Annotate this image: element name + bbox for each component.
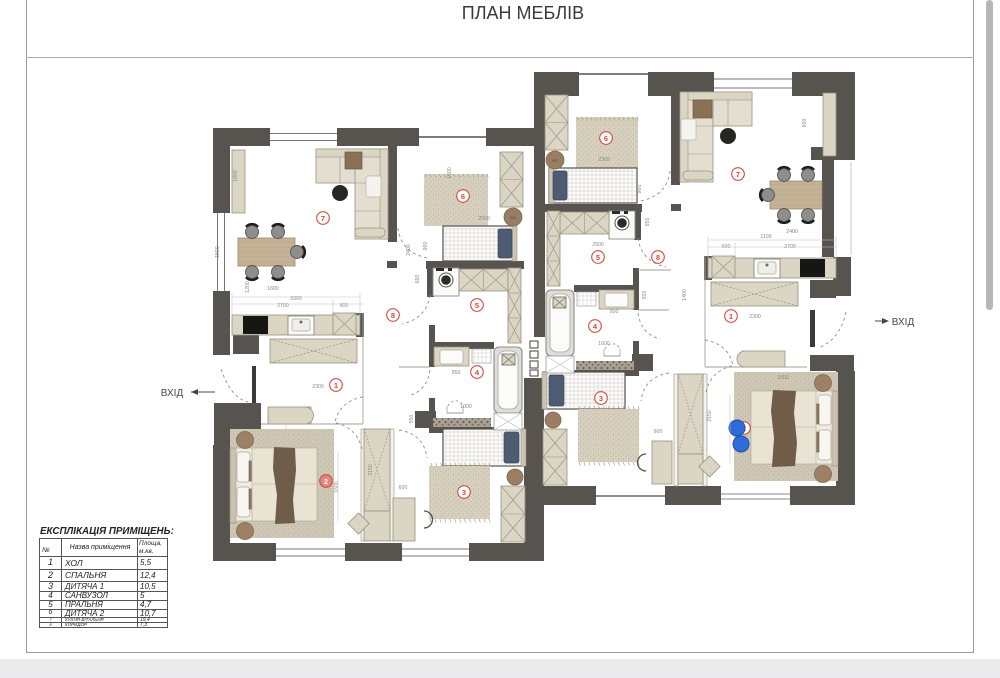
svg-text:550: 550 — [642, 291, 648, 300]
svg-text:1000: 1000 — [460, 404, 472, 410]
svg-text:600: 600 — [654, 429, 663, 435]
svg-text:2150: 2150 — [707, 410, 713, 422]
svg-text:1100: 1100 — [760, 234, 771, 240]
svg-text:650: 650 — [415, 275, 421, 284]
svg-text:2150: 2150 — [368, 464, 374, 476]
svg-text:5: 5 — [475, 301, 479, 310]
svg-text:2000: 2000 — [777, 375, 789, 381]
svg-text:3: 3 — [462, 488, 466, 497]
svg-text:1600: 1600 — [598, 341, 610, 347]
svg-text:650: 650 — [645, 218, 651, 227]
svg-text:8: 8 — [391, 311, 395, 320]
svg-text:5: 5 — [596, 253, 600, 262]
svg-text:2300: 2300 — [312, 384, 324, 390]
svg-text:900: 900 — [637, 185, 643, 194]
svg-text:7: 7 — [736, 170, 740, 179]
svg-text:1: 1 — [729, 312, 733, 321]
svg-text:950: 950 — [452, 370, 461, 376]
svg-text:1500: 1500 — [215, 246, 221, 258]
svg-text:1400: 1400 — [682, 289, 688, 301]
svg-text:3: 3 — [599, 394, 603, 403]
svg-text:7: 7 — [321, 214, 325, 223]
svg-text:600: 600 — [399, 485, 408, 491]
svg-text:2300: 2300 — [749, 314, 761, 320]
svg-text:2000: 2000 — [478, 216, 490, 222]
svg-text:8: 8 — [656, 253, 660, 262]
svg-text:2: 2 — [324, 477, 328, 486]
svg-text:ВХІД: ВХІД — [892, 317, 915, 328]
svg-text:1800: 1800 — [233, 170, 239, 182]
svg-text:950: 950 — [610, 309, 619, 315]
svg-text:1600: 1600 — [267, 286, 279, 292]
svg-text:550: 550 — [409, 415, 415, 424]
svg-text:900: 900 — [423, 242, 429, 251]
svg-text:6: 6 — [604, 134, 608, 143]
svg-text:1200: 1200 — [245, 281, 251, 293]
svg-text:1600: 1600 — [334, 481, 340, 493]
svg-text:650: 650 — [510, 216, 516, 220]
svg-text:2400: 2400 — [406, 244, 412, 256]
svg-text:2500: 2500 — [592, 242, 604, 248]
svg-text:2400: 2400 — [786, 229, 798, 235]
svg-text:600: 600 — [802, 119, 808, 128]
svg-text:ВХІД: ВХІД — [161, 388, 184, 399]
svg-text:2300: 2300 — [598, 157, 610, 163]
svg-text:6: 6 — [461, 192, 465, 201]
svg-text:1500: 1500 — [447, 167, 453, 179]
svg-text:650: 650 — [552, 159, 558, 163]
svg-text:1: 1 — [334, 381, 338, 390]
